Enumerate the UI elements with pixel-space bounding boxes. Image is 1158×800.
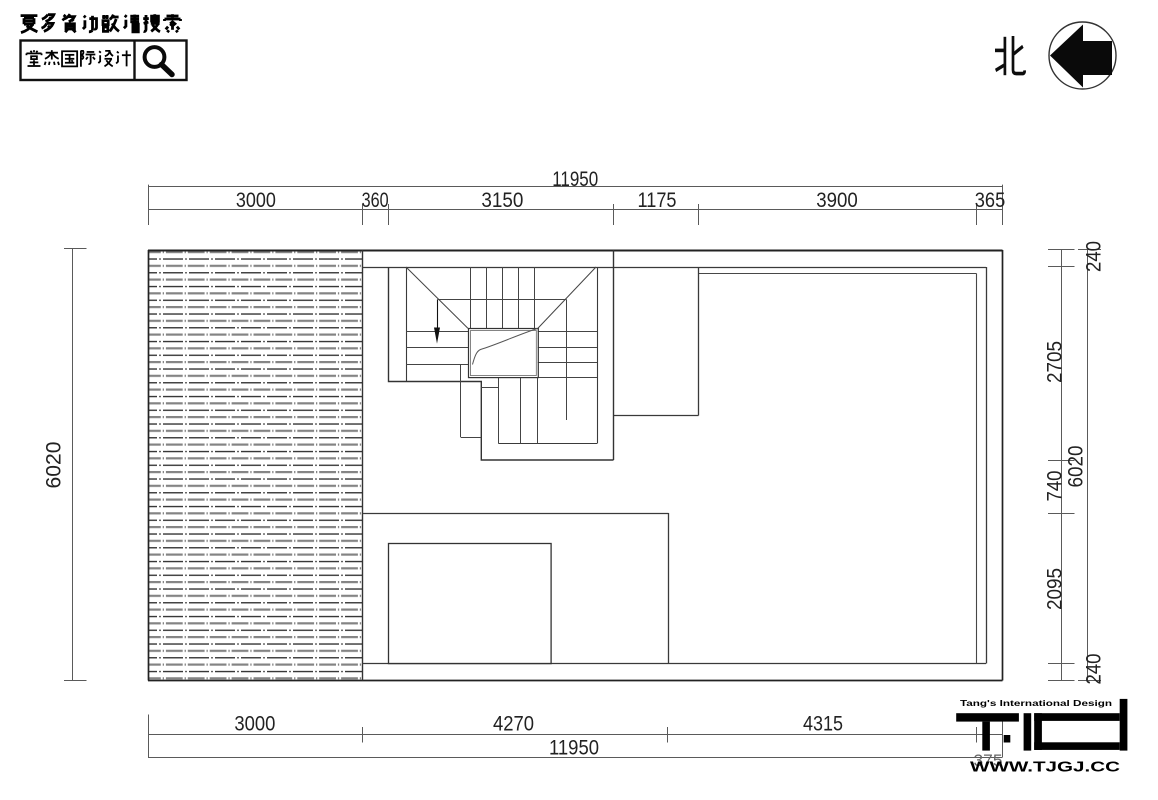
svg-text:2095: 2095 bbox=[1044, 568, 1067, 610]
svg-text:3900: 3900 bbox=[816, 189, 858, 212]
svg-text:3150: 3150 bbox=[481, 189, 523, 212]
svg-text:4315: 4315 bbox=[803, 713, 843, 736]
svg-text:11950: 11950 bbox=[549, 736, 599, 759]
svg-text:6020: 6020 bbox=[1065, 446, 1088, 488]
svg-text:1175: 1175 bbox=[638, 189, 677, 212]
svg-text:4270: 4270 bbox=[493, 713, 534, 736]
svg-text:240: 240 bbox=[1083, 241, 1106, 272]
svg-text:365: 365 bbox=[975, 189, 1006, 212]
svg-text:360: 360 bbox=[362, 189, 389, 212]
svg-text:Tang's International Design: Tang's International Design bbox=[960, 698, 1112, 708]
svg-text:740: 740 bbox=[1044, 471, 1067, 502]
svg-text:3000: 3000 bbox=[236, 189, 276, 212]
svg-text:11950: 11950 bbox=[552, 168, 598, 191]
svg-text:2705: 2705 bbox=[1044, 341, 1067, 383]
svg-text:240: 240 bbox=[1083, 654, 1106, 685]
svg-text:6020: 6020 bbox=[43, 442, 66, 489]
svg-text:3000: 3000 bbox=[234, 713, 275, 736]
svg-text:WWW.TJGJ.CC: WWW.TJGJ.CC bbox=[970, 760, 1121, 776]
